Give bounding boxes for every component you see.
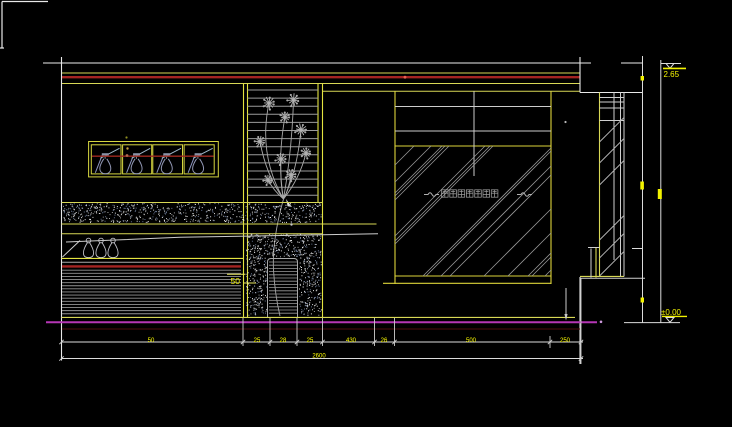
- svg-text:2600: 2600: [312, 354, 326, 360]
- svg-text:26: 26: [381, 338, 388, 344]
- svg-text:25: 25: [307, 338, 314, 344]
- svg-text:250: 250: [560, 338, 571, 344]
- svg-text:25: 25: [254, 338, 261, 344]
- svg-text:±0.00: ±0.00: [661, 308, 682, 317]
- svg-text:50: 50: [148, 338, 155, 344]
- svg-text:500: 500: [466, 338, 477, 344]
- svg-text:430: 430: [346, 338, 357, 344]
- svg-text:50: 50: [231, 276, 241, 286]
- svg-text:2.65: 2.65: [664, 70, 680, 79]
- svg-text:28: 28: [280, 338, 287, 344]
